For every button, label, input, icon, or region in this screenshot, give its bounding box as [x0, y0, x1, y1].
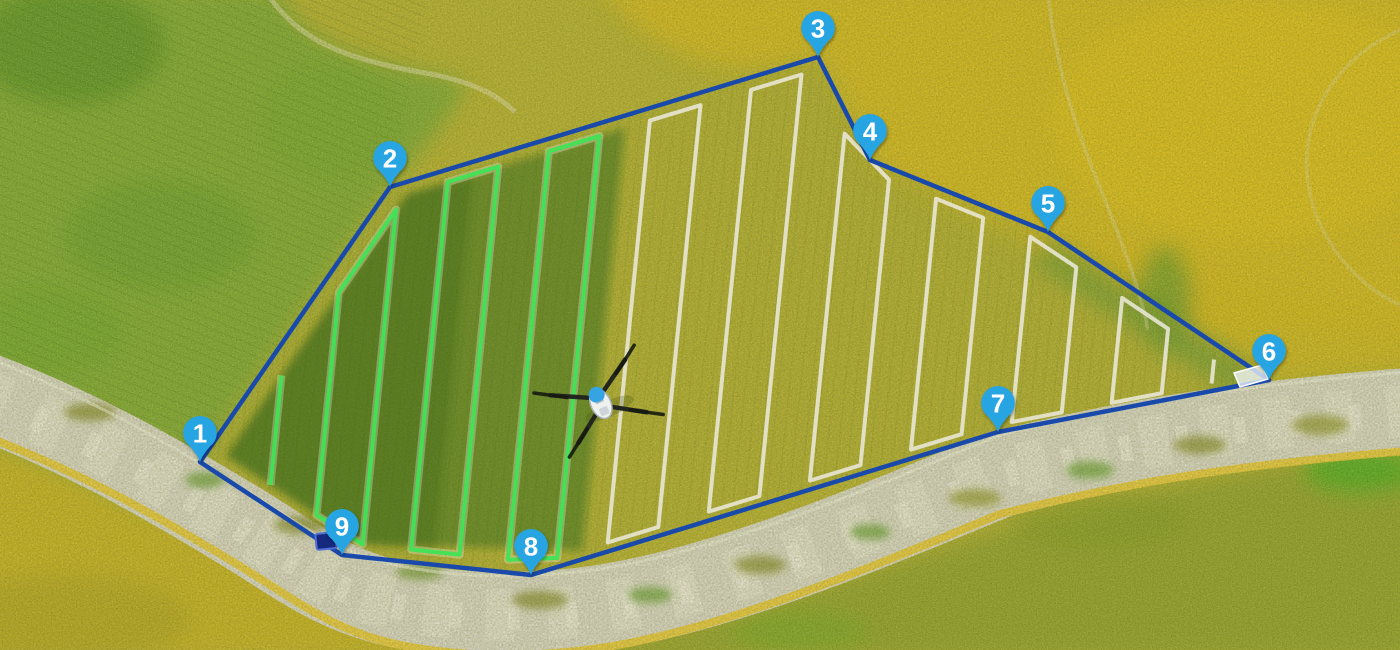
waypoint-number: 9	[335, 512, 349, 542]
waypoint-number: 7	[991, 389, 1005, 419]
waypoint-number: 2	[383, 144, 397, 174]
waypoint-number: 6	[1262, 337, 1276, 367]
map-canvas[interactable]: 123456789	[0, 0, 1400, 650]
waypoint-number: 3	[811, 14, 825, 44]
waypoint-number: 5	[1041, 189, 1055, 219]
waypoint-number: 4	[863, 117, 878, 147]
waypoint-number: 8	[524, 532, 538, 562]
aerial-map[interactable]: 123456789	[0, 0, 1400, 650]
waypoint-number: 1	[193, 419, 207, 449]
planned-lane-loop	[1212, 360, 1214, 384]
